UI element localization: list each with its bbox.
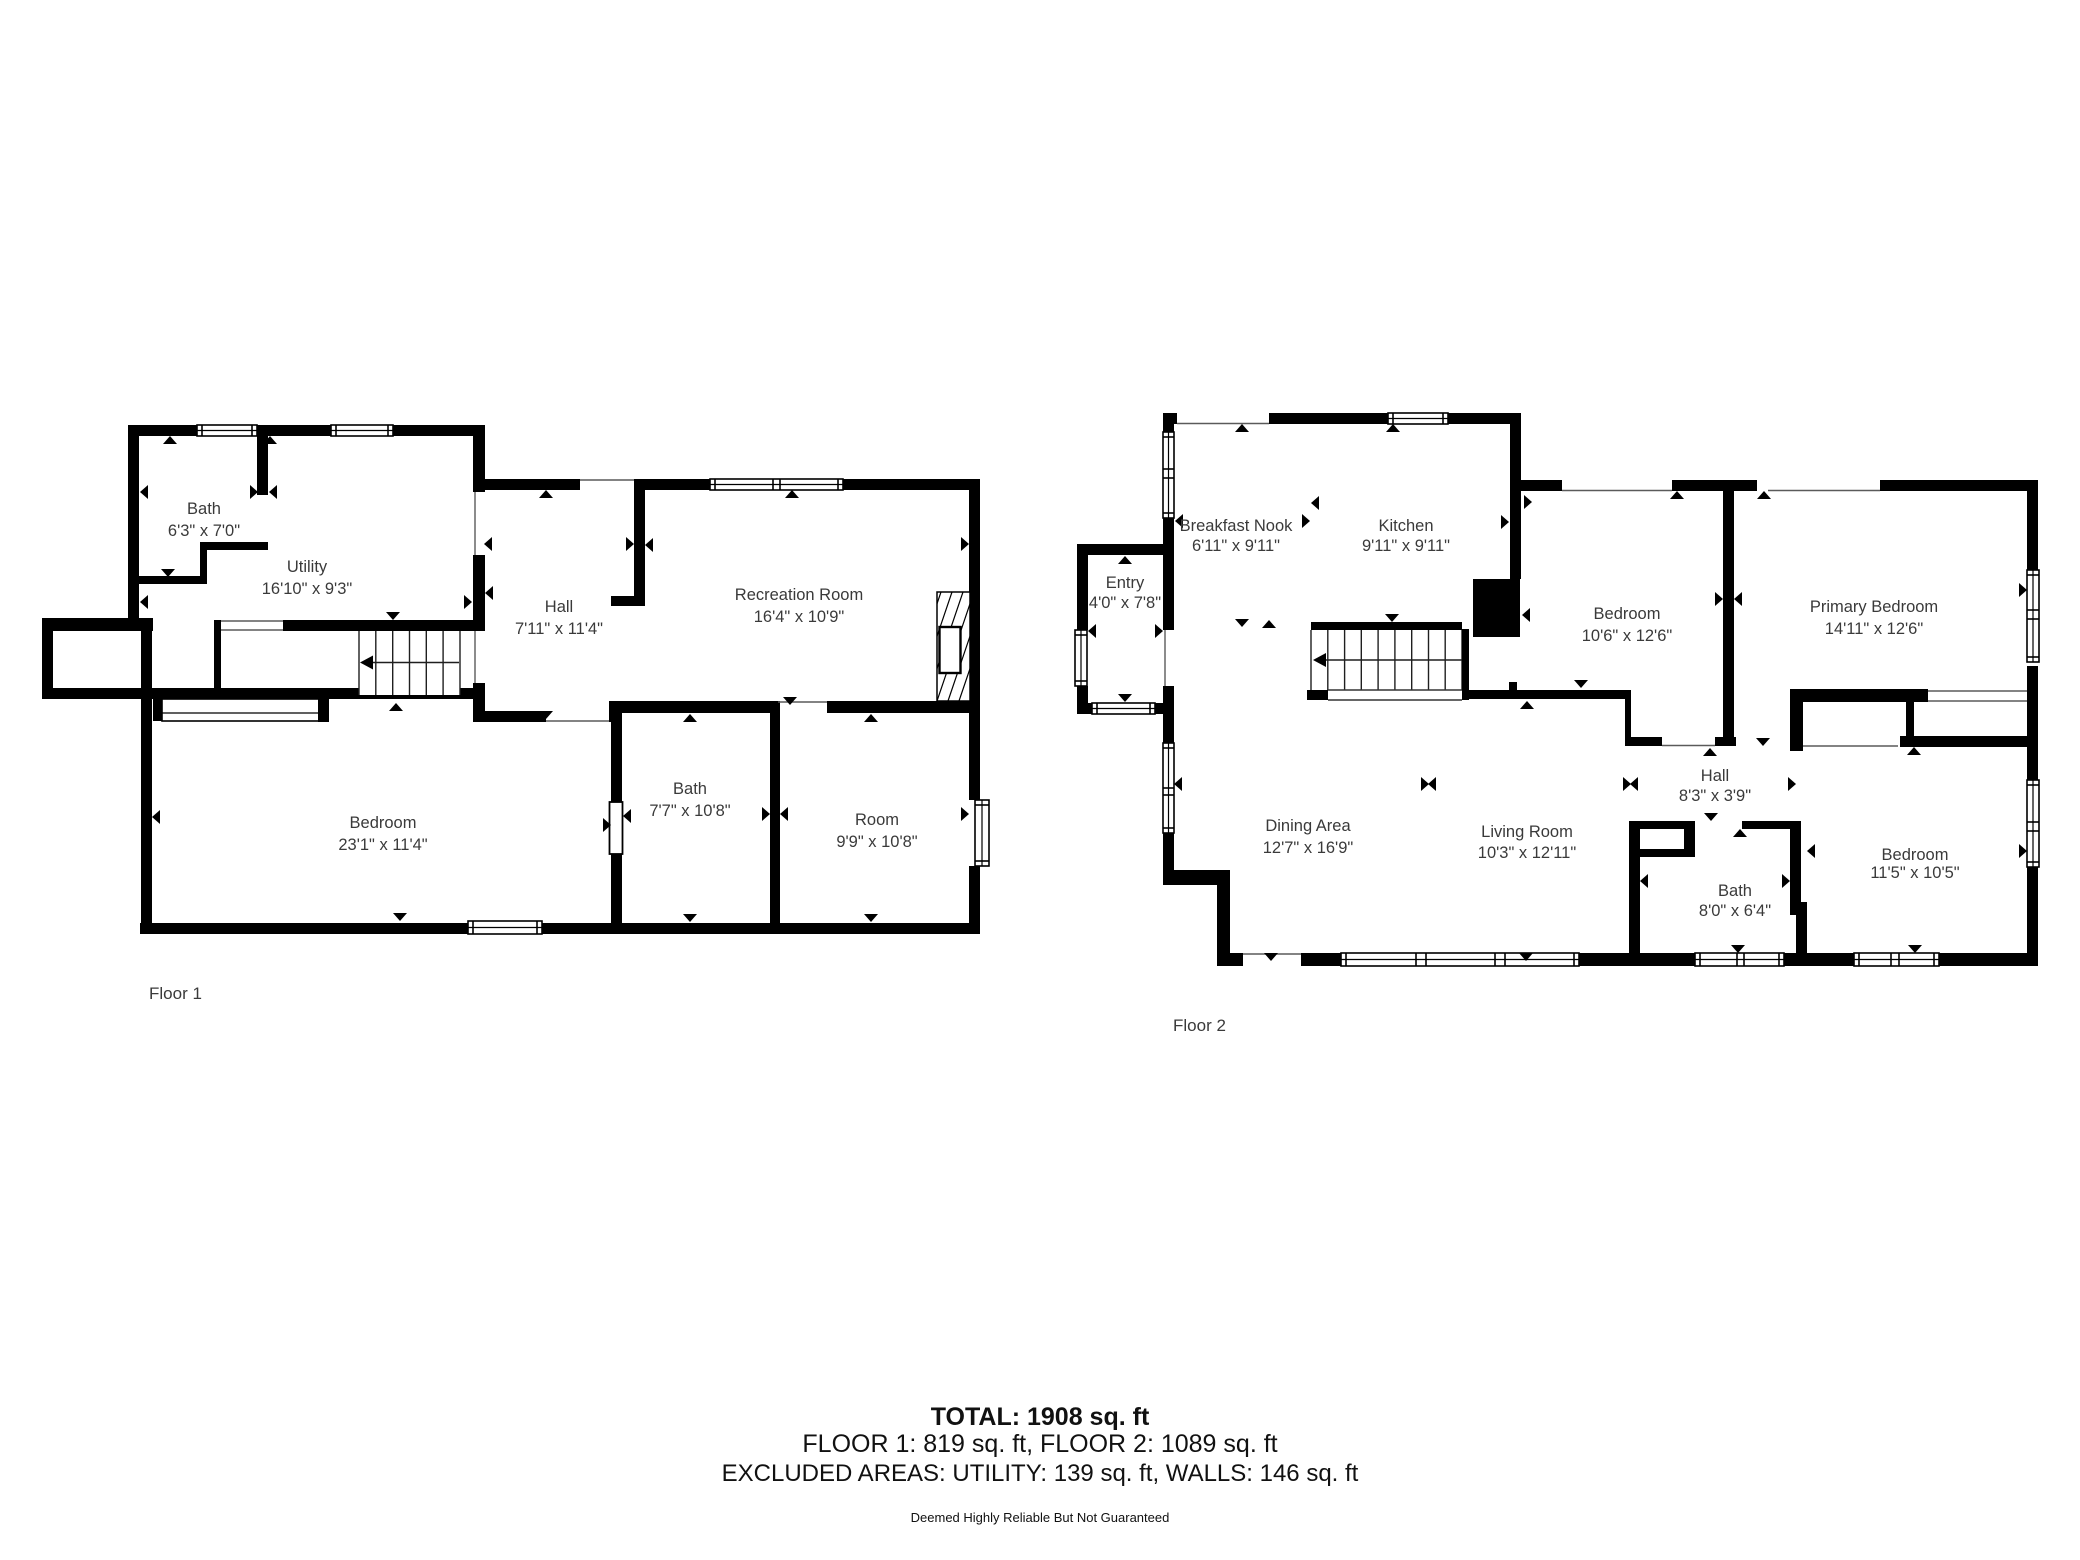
- svg-text:Utility: Utility: [287, 558, 328, 576]
- svg-text:Room: Room: [855, 811, 899, 829]
- svg-text:16'10" x 9'3": 16'10" x 9'3": [262, 580, 353, 598]
- svg-text:23'1" x 11'4": 23'1" x 11'4": [338, 836, 427, 854]
- svg-text:Bedroom: Bedroom: [350, 814, 417, 832]
- svg-text:14'11" x 12'6": 14'11" x 12'6": [1825, 620, 1924, 638]
- svg-text:Floor 1: Floor 1: [149, 984, 202, 1003]
- svg-text:7'11" x 11'4": 7'11" x 11'4": [515, 620, 603, 638]
- svg-text:Dining Area: Dining Area: [1265, 817, 1351, 835]
- svg-text:FLOOR 1: 819 sq. ft, FLOOR 2:: FLOOR 1: 819 sq. ft, FLOOR 2: 1089 sq. f…: [802, 1430, 1277, 1458]
- svg-text:4'0" x 7'8": 4'0" x 7'8": [1089, 594, 1161, 612]
- svg-text:Deemed Highly Reliable But Not: Deemed Highly Reliable But Not Guarantee…: [911, 1510, 1170, 1525]
- svg-text:12'7" x 16'9": 12'7" x 16'9": [1263, 839, 1354, 857]
- svg-text:10'6" x 12'6": 10'6" x 12'6": [1582, 627, 1673, 645]
- svg-text:Kitchen: Kitchen: [1378, 517, 1433, 535]
- svg-text:10'3" x 12'11": 10'3" x 12'11": [1478, 844, 1577, 862]
- svg-text:Hall: Hall: [545, 598, 573, 616]
- svg-text:6'11" x 9'11": 6'11" x 9'11": [1192, 537, 1280, 555]
- svg-text:9'9" x 10'8": 9'9" x 10'8": [836, 833, 917, 851]
- svg-text:Living Room: Living Room: [1481, 823, 1573, 841]
- svg-text:Bedroom: Bedroom: [1882, 846, 1949, 864]
- svg-text:16'4" x 10'9": 16'4" x 10'9": [754, 608, 845, 626]
- svg-text:6'3" x 7'0": 6'3" x 7'0": [168, 522, 240, 540]
- svg-text:Bedroom: Bedroom: [1594, 605, 1661, 623]
- svg-text:Recreation Room: Recreation Room: [735, 586, 863, 604]
- svg-text:EXCLUDED AREAS: UTILITY: 139 s: EXCLUDED AREAS: UTILITY: 139 sq. ft, WAL…: [722, 1460, 1359, 1487]
- svg-text:9'11" x 9'11": 9'11" x 9'11": [1362, 537, 1450, 555]
- svg-text:11'5" x 10'5": 11'5" x 10'5": [1870, 864, 1959, 882]
- svg-text:Bath: Bath: [1718, 882, 1752, 900]
- svg-text:8'0" x 6'4": 8'0" x 6'4": [1699, 902, 1771, 920]
- svg-text:8'3" x 3'9": 8'3" x 3'9": [1679, 787, 1751, 805]
- svg-text:Bath: Bath: [187, 500, 221, 518]
- svg-text:Floor 2: Floor 2: [1173, 1016, 1226, 1035]
- svg-text:7'7" x 10'8": 7'7" x 10'8": [649, 802, 730, 820]
- svg-text:Primary Bedroom: Primary Bedroom: [1810, 598, 1938, 616]
- svg-text:Bath: Bath: [673, 780, 707, 798]
- svg-text:TOTAL: 1908 sq. ft: TOTAL: 1908 sq. ft: [931, 1403, 1150, 1431]
- svg-text:Hall: Hall: [1701, 767, 1729, 785]
- svg-text:Entry: Entry: [1106, 574, 1145, 592]
- svg-text:Breakfast Nook: Breakfast Nook: [1180, 517, 1294, 535]
